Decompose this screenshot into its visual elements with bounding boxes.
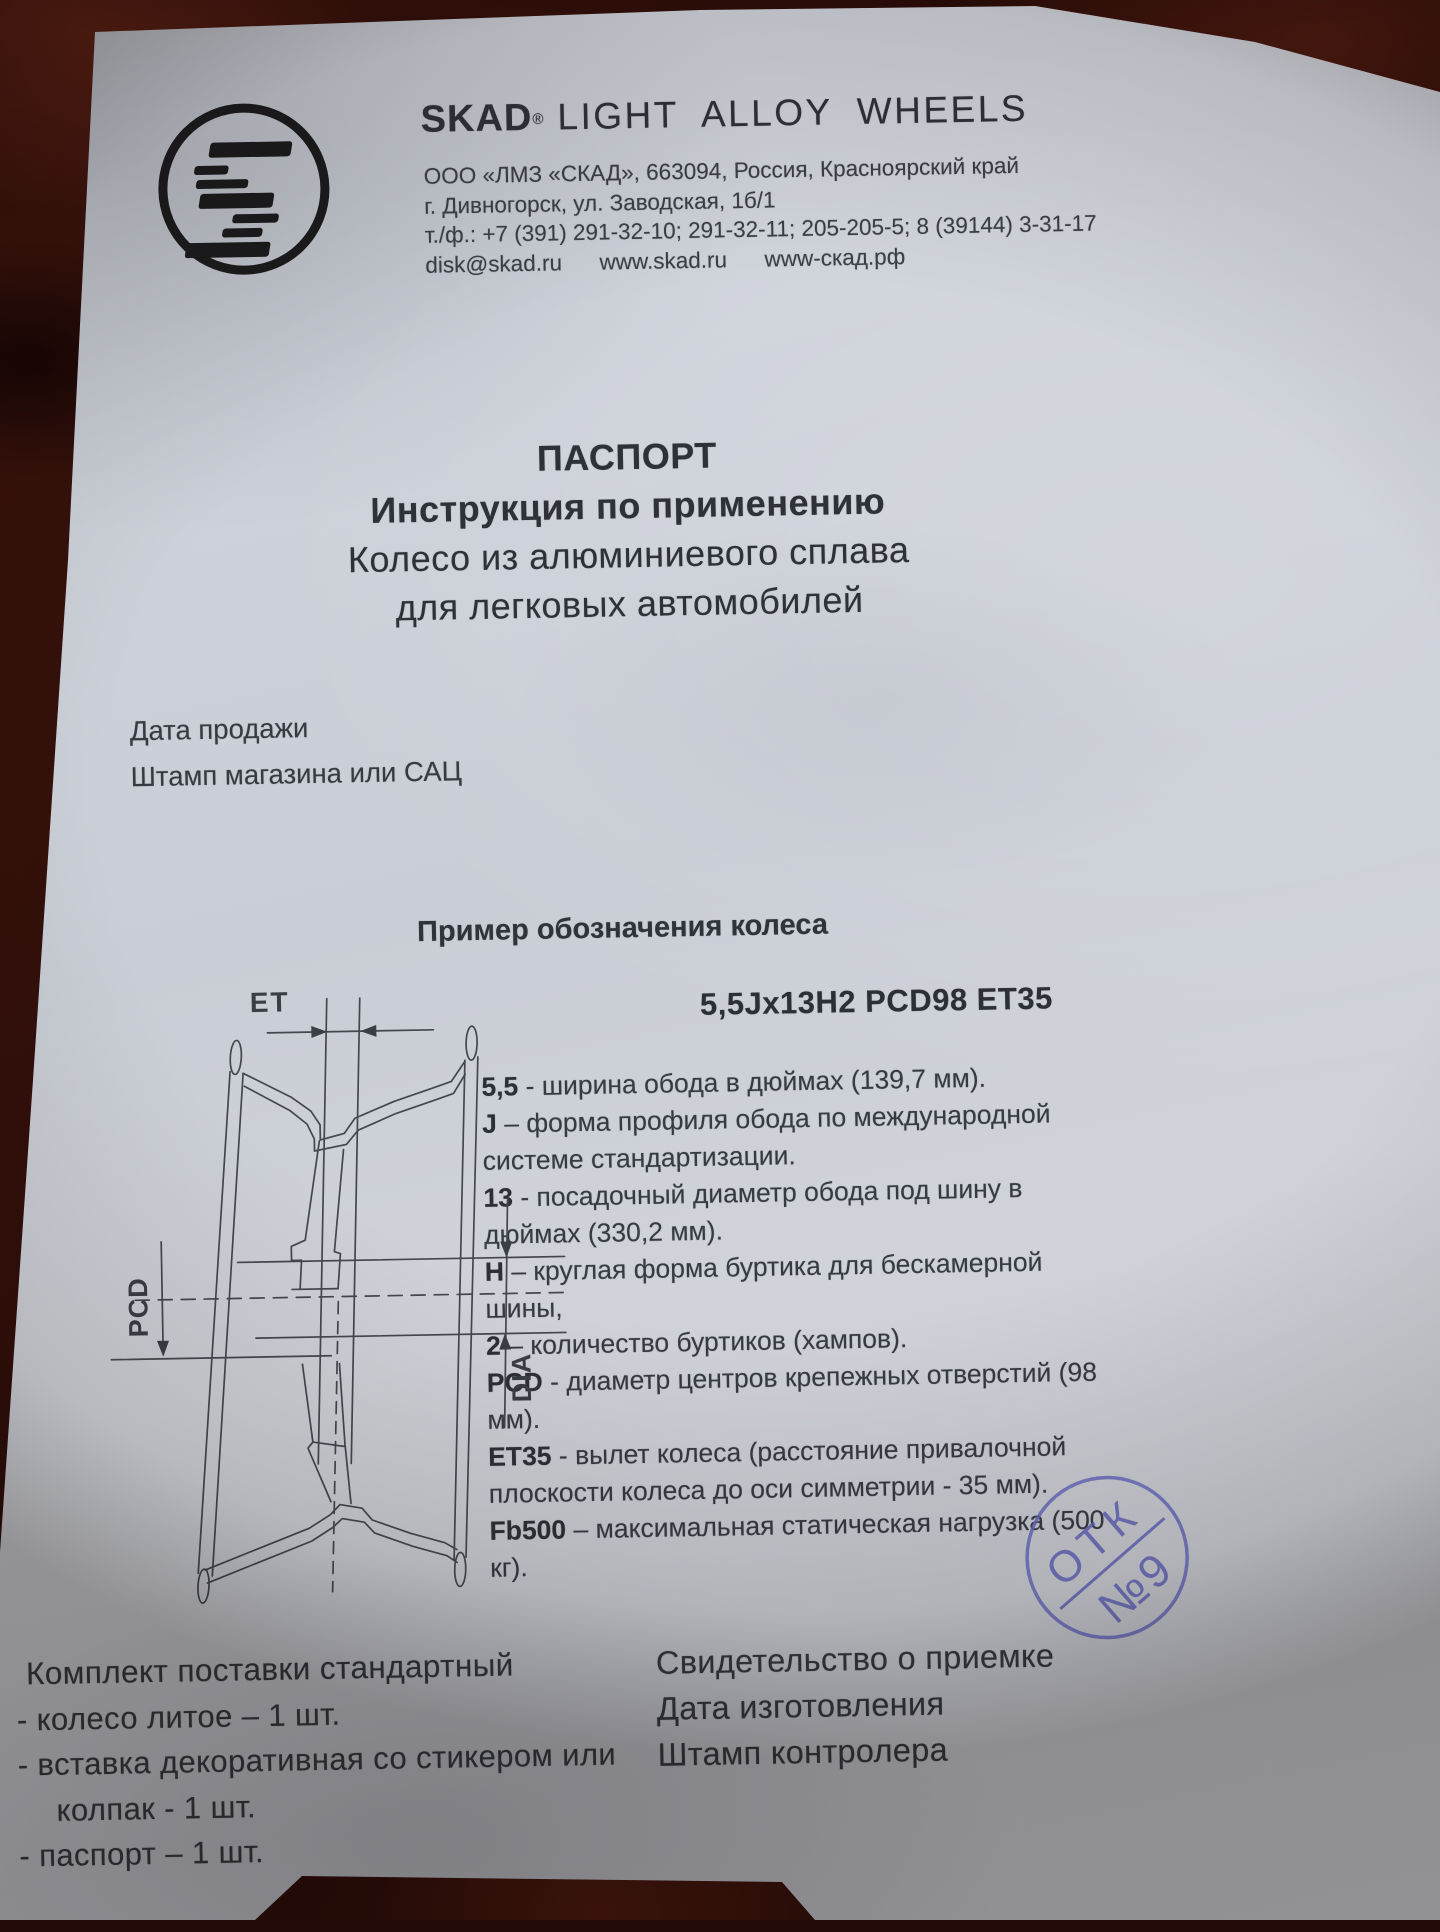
lower-profile-outer bbox=[204, 1502, 457, 1570]
pcd-label: PCD bbox=[123, 1277, 154, 1338]
dia-lower-line bbox=[256, 1332, 566, 1338]
dia-arrow-up-icon bbox=[499, 1333, 511, 1349]
et-dimension-line bbox=[267, 1030, 433, 1033]
right-flange-bottom-cap bbox=[454, 1552, 466, 1586]
upper-profile-inner bbox=[244, 1074, 466, 1152]
hub-lower-step bbox=[313, 1441, 345, 1447]
package-list: - колесо литое – 1 шт.- вставка декорати… bbox=[17, 1686, 619, 1879]
lower-profile-inner bbox=[206, 1516, 457, 1583]
dia-label: DIA bbox=[506, 1352, 537, 1402]
spoke-left-line bbox=[289, 1141, 322, 1290]
sale-date-label: Дата продажи bbox=[130, 712, 309, 747]
left-flange-bottom-cap bbox=[197, 1569, 210, 1604]
acceptance-line: Дата изготовления bbox=[656, 1679, 1055, 1732]
brand-name: SKAD bbox=[420, 97, 532, 141]
pcd-reference-line bbox=[111, 1356, 331, 1360]
wheel-cross-section-diagram: ET PCD DIA bbox=[89, 939, 584, 1680]
spec-item: H – круглая форма буртика для бескамерно… bbox=[484, 1242, 1125, 1328]
brand-line: SKAD®LIGHT ALLOY WHEELS bbox=[420, 88, 1028, 142]
package-block: Комплект поставки стандартный - колесо л… bbox=[16, 1641, 619, 1879]
seat-diameter-line bbox=[238, 1256, 565, 1262]
hub-face-line bbox=[292, 1289, 338, 1290]
title-block: ПАСПОРТИнструкция по применениюКолесо из… bbox=[191, 424, 1064, 636]
spoke-right-line bbox=[333, 1149, 347, 1288]
skad-logo bbox=[153, 99, 334, 280]
right-flange-outer-line bbox=[457, 1057, 487, 1557]
spoke-lower-left-line bbox=[302, 1364, 331, 1502]
symmetry-plane-line bbox=[343, 998, 369, 1463]
logo-s-icon bbox=[180, 141, 292, 258]
right-flange-top-cap bbox=[466, 1026, 478, 1060]
wheel-designation: 5,5Jx13H2 PCD98 ET35 bbox=[700, 980, 1054, 1022]
spoke-lower-right-line bbox=[339, 1363, 351, 1503]
et-label: ET bbox=[250, 986, 290, 1018]
spec-item: 13 - посадочный диаметр обода под шину в… bbox=[483, 1168, 1124, 1254]
et-arrow-left-icon bbox=[360, 1025, 376, 1037]
pcd-arrow-down-icon bbox=[157, 1341, 169, 1357]
acceptance-line: Свидетельство о приемке bbox=[656, 1633, 1055, 1686]
address-block: ООО «ЛМЗ «СКАД», 663094, Россия, Красноя… bbox=[423, 150, 1097, 280]
acceptance-line: Штамп контролера bbox=[657, 1725, 1056, 1778]
pcd-dimension-line bbox=[161, 1242, 163, 1347]
brand-tagline: LIGHT ALLOY WHEELS bbox=[557, 88, 1028, 138]
qc-ink-stamp: ОТК №9 bbox=[1008, 1458, 1207, 1662]
left-flange-top-cap bbox=[229, 1040, 242, 1075]
left-flange-inner-line bbox=[203, 1073, 252, 1576]
package-item: - паспорт – 1 шт. bbox=[19, 1823, 618, 1879]
left-flange-outer-line bbox=[189, 1072, 239, 1574]
et-arrow-right-icon bbox=[311, 1026, 327, 1038]
shop-stamp-label: Штамп магазина или САЦ bbox=[130, 755, 462, 793]
document-content: SKAD®LIGHT ALLOY WHEELS ООО «ЛМЗ «СКАД»,… bbox=[0, 0, 1440, 1932]
dia-arrow-down-icon bbox=[500, 1241, 512, 1257]
spec-item: PCD - диаметр центров крепежных отверсти… bbox=[486, 1353, 1127, 1439]
right-flange-inner-line bbox=[445, 1060, 474, 1560]
registered-mark-icon: ® bbox=[532, 111, 543, 128]
acceptance-block: Свидетельство о приемкеДата изготовления… bbox=[656, 1633, 1057, 1778]
mounting-plane-line bbox=[310, 999, 336, 1464]
axis-centerline-dashed bbox=[135, 1292, 565, 1300]
spec-item: J – форма профиля обода по международной… bbox=[482, 1094, 1123, 1180]
spec-text: - ширина обода в дюймах (139,7 мм). bbox=[518, 1063, 986, 1102]
